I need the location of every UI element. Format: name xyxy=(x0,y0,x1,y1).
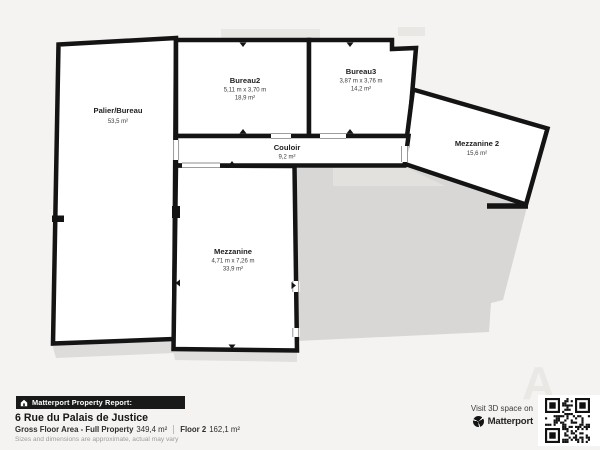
property-report-page: Palier/Bureau 53,5 m² Bureau2 5,11 m x 3… xyxy=(0,0,600,450)
exterior-ledge xyxy=(221,29,320,39)
report-badge: Matterport Property Report: xyxy=(16,396,185,409)
room-dims-mezzanine: 4,71 m x 7,26 m xyxy=(211,259,254,265)
exterior-ledge-2 xyxy=(398,27,425,36)
room-dims-bureau2: 5,11 m x 3,70 m xyxy=(224,88,267,94)
matterport-house-icon xyxy=(20,399,28,407)
room-palier-bureau xyxy=(53,38,176,344)
matterport-wordmark: Matterport xyxy=(488,416,533,427)
qr-code-panel xyxy=(538,395,600,446)
floor-plan: Palier/Bureau 53,5 m² Bureau2 5,11 m x 3… xyxy=(0,0,600,392)
visit-3d-space-link[interactable]: Visit 3D space on Matterport xyxy=(471,404,533,427)
floor-area-value: 162,1 m² xyxy=(209,425,240,434)
visit-text: Visit 3D space on xyxy=(471,404,533,413)
property-address: 6 Rue du Palais de Justice xyxy=(15,412,148,424)
room-label-palier-bureau: Palier/Bureau xyxy=(94,106,143,115)
room-label-mezzanine-2: Mezzanine 2 xyxy=(455,139,499,148)
report-badge-label: Matterport Property Report: xyxy=(32,398,132,407)
area-stats: Gross Floor Area - Full Property 349,4 m… xyxy=(15,425,240,434)
disclaimer-text: Sizes and dimensions are approximate, ac… xyxy=(15,436,178,443)
room-area-mezzanine-2: 15,6 m² xyxy=(467,151,487,157)
room-dims-bureau3: 3,87 m x 3,76 m xyxy=(339,79,382,85)
room-area-couloir: 9,2 m² xyxy=(278,155,295,161)
room-label-bureau2: Bureau2 xyxy=(230,76,260,85)
room-area-palier-bureau: 53,5 m² xyxy=(108,119,128,125)
room-label-couloir: Couloir xyxy=(274,143,301,152)
qr-code xyxy=(545,398,590,443)
wall-stub-palier-left xyxy=(52,216,64,223)
wall-stub-palier-right xyxy=(172,206,180,218)
room-label-bureau3: Bureau3 xyxy=(346,67,376,76)
gross-floor-area-value: 349,4 m² xyxy=(136,425,167,434)
room-area-bureau2: 18,9 m² xyxy=(235,96,255,102)
stats-divider xyxy=(173,425,174,434)
room-area-mezzanine: 33,9 m² xyxy=(223,267,243,273)
room-label-mezzanine: Mezzanine xyxy=(214,247,252,256)
matterport-logo-icon xyxy=(473,416,484,427)
gross-floor-area-label: Gross Floor Area - Full Property xyxy=(15,425,133,434)
room-area-bureau3: 14,2 m² xyxy=(351,87,371,93)
floor-label: Floor 2 xyxy=(180,425,206,434)
